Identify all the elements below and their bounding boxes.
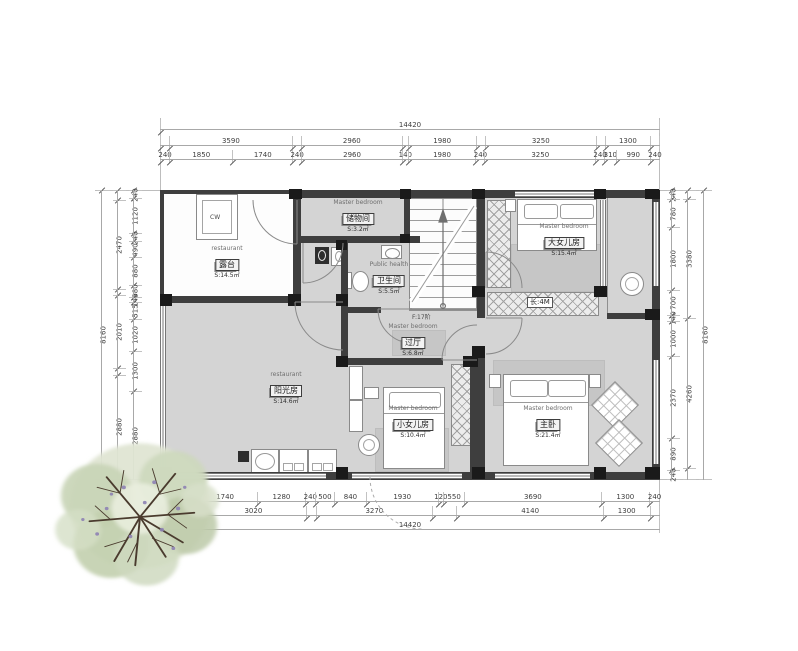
dimension-value: 2010 <box>117 323 124 341</box>
wall-terrace-left <box>160 190 164 302</box>
pillow <box>548 380 586 397</box>
dimension-segment: 240 <box>649 492 660 505</box>
window-elder-daughter-east <box>600 200 606 286</box>
column <box>160 294 172 306</box>
dimension-segment: 4260 <box>683 318 696 468</box>
dimension-segment: 240 <box>650 150 660 163</box>
sink-basin-icon <box>385 248 400 259</box>
staircase <box>409 198 477 310</box>
dimension-row-top-groups: 35902960198032501300 <box>160 136 660 149</box>
dimension-value: 1020 <box>133 326 140 344</box>
room-label-bathroom: Public health卫生间S:5.5㎡ <box>370 261 409 295</box>
dimension-segment: 3590 <box>169 136 292 149</box>
wall-bathroom-south <box>345 307 381 313</box>
room-area: S:14.6㎡ <box>270 398 302 405</box>
dimension-segment: 1300 <box>601 492 650 505</box>
dimension-segment: 8160 <box>699 190 712 480</box>
toilet-icon <box>352 271 369 292</box>
dimension-segment: 3270 <box>316 506 432 519</box>
room-name-zh: 小女儿房 <box>393 419 433 431</box>
wall-terrace-top <box>160 190 295 194</box>
dimension-value: 1280 <box>273 494 291 501</box>
column <box>645 189 660 199</box>
cabinet <box>279 449 308 474</box>
room-name-en: Master bedroom <box>539 223 588 230</box>
dimension-value: 2370 <box>671 389 678 407</box>
column <box>594 467 606 479</box>
wall-stair-east <box>477 198 485 290</box>
room-name-zh: 储物间 <box>342 213 374 225</box>
dimension-segment <box>650 506 660 519</box>
dimension-segment: 500 <box>315 492 334 505</box>
dimension-value: 4140 <box>521 508 539 515</box>
dimension-segment: 780 <box>667 199 680 227</box>
dimension-value: 550 <box>447 494 460 501</box>
wall-stair-west <box>404 198 410 238</box>
drawer-icon <box>323 463 333 471</box>
dimension-value: 1740 <box>254 152 272 159</box>
dimension-segment: 1120 <box>129 198 142 233</box>
dimension-segment <box>160 136 169 149</box>
column <box>472 189 485 199</box>
dimension-segment: 2960 <box>301 136 402 149</box>
cabinet-tall <box>349 366 363 400</box>
washer-drum-icon <box>255 453 275 470</box>
dimension-segment: 3250 <box>484 150 595 163</box>
room-label-storage: Master bedroom储物间S:3.2㎡ <box>333 199 382 233</box>
dimension-segment: 1800 <box>667 227 680 290</box>
dimension-value: 240 <box>671 468 678 481</box>
dimension-segment: 550 <box>443 492 464 505</box>
dimension-segment: 240 <box>292 150 301 163</box>
room-name-en: Master bedroom <box>388 405 437 412</box>
dimension-segment: 310 <box>604 150 615 163</box>
room-label-elder-daughter: Master bedroom大女儿房S:15.4㎡ <box>539 223 588 257</box>
column <box>400 189 411 199</box>
room-name-zh: 过厅 <box>401 337 425 349</box>
room-area: S:5.5㎡ <box>370 288 409 295</box>
room-name-zh: 露台 <box>215 259 239 271</box>
dimension-segment: 1980 <box>408 136 476 149</box>
dimension-segment: 14420 <box>160 120 660 133</box>
washer-drum-icon <box>318 250 326 261</box>
room-name-en: Master bedroom <box>333 199 382 206</box>
room-label-hallway: Master bedroom过厅S:6.8㎡ <box>388 323 437 357</box>
room-name-zh: 大女儿房 <box>544 237 584 249</box>
room-name-zh: 卫生间 <box>373 275 405 287</box>
dimension-row-top-details: 2401850174024029601401980240325024031099… <box>160 150 660 163</box>
dimension-value: 2960 <box>343 152 361 159</box>
wall-sunroom-north <box>160 296 295 303</box>
bay-divider-line <box>607 198 608 313</box>
room-name-en: Master bedroom <box>523 405 572 412</box>
dimension-segment: 880 <box>129 257 142 285</box>
dimension-segment <box>432 506 457 519</box>
drawer-icon <box>294 463 304 471</box>
dimension-value: 780 <box>671 207 678 220</box>
room-label-terrace: restaurant露台S:14.5㎡ <box>211 245 242 279</box>
stair-bottom-line <box>409 310 477 311</box>
column <box>336 240 347 250</box>
pillow <box>524 204 558 219</box>
dimension-value: 1300 <box>618 508 636 515</box>
nightstand <box>505 199 516 212</box>
dimension-value: 1120 <box>133 207 140 225</box>
washer-cabinet-icon <box>251 449 279 474</box>
cabinet-tall <box>349 400 363 432</box>
dimension-value: 1300 <box>616 494 634 501</box>
column <box>472 286 485 297</box>
column <box>472 346 485 358</box>
stair-note: F:17阶 <box>412 312 431 321</box>
dimension-value: 3590 <box>222 138 240 145</box>
room-name-en: Master bedroom <box>388 323 437 330</box>
column <box>594 189 606 199</box>
chair-elder-daughter <box>620 272 644 296</box>
dimension-segment: 1300 <box>603 506 650 519</box>
room-area: S:3.2㎡ <box>333 226 382 233</box>
chair-seat <box>363 439 375 451</box>
dimension-value: 8160 <box>101 326 108 344</box>
dimension-value: 700 <box>671 296 678 309</box>
dimension-segment: 2960 <box>301 150 402 163</box>
dimension-value: 3250 <box>531 152 549 159</box>
column <box>400 234 410 243</box>
chair-little-daughter <box>358 434 380 456</box>
window-bottom-right <box>495 473 590 479</box>
drawer-icon <box>283 463 293 471</box>
dimension-value: 3690 <box>524 494 542 501</box>
wall-master-west-lower <box>477 352 485 472</box>
column <box>336 467 348 479</box>
dimension-segment: 2370 <box>667 356 680 438</box>
dimension-value: 1300 <box>133 362 140 380</box>
dimension-segment: 1980 <box>408 150 476 163</box>
drawer-icon <box>312 463 322 471</box>
dimension-value: 14420 <box>399 122 421 129</box>
room-area: S:21.4㎡ <box>523 432 572 439</box>
dimension-value: 890 <box>671 448 678 461</box>
dimension-segment: 240 <box>160 150 169 163</box>
dimension-segment: 240 <box>475 150 484 163</box>
window-right-upper <box>653 202 659 286</box>
dimension-value: 1850 <box>192 152 210 159</box>
dimension-value: 3270 <box>365 508 383 515</box>
dimension-value: 1800 <box>671 250 678 268</box>
dimension-segment <box>292 136 301 149</box>
column <box>288 294 301 306</box>
tree-illustration <box>40 428 240 606</box>
washing-machine-icon <box>315 247 329 264</box>
column <box>645 309 660 320</box>
pillow <box>510 380 548 397</box>
room-area: S:14.5㎡ <box>211 272 242 279</box>
room-label-sunroom: restaurant阳光房S:14.6㎡ <box>270 371 302 405</box>
dimension-value: 3250 <box>532 138 550 145</box>
room-name-en: restaurant <box>270 371 302 378</box>
dimension-segment <box>306 506 315 519</box>
dimension-value: 4260 <box>687 385 694 403</box>
nightstand <box>364 387 379 399</box>
wall-hallway-south <box>345 358 443 365</box>
dimension-value: 1000 <box>671 330 678 348</box>
dimension-segment <box>650 136 660 149</box>
dimension-value: 1980 <box>433 152 451 159</box>
nightstand <box>589 374 601 388</box>
column <box>289 189 302 199</box>
cabinet <box>308 449 337 474</box>
dimension-row-right-total: 8160 <box>699 190 712 480</box>
dimension-segment: 1740 <box>232 150 292 163</box>
dimension-segment: 4140 <box>456 506 603 519</box>
room-area: S:6.8㎡ <box>388 350 437 357</box>
dimension-segment: 890 <box>667 438 680 470</box>
dimension-segment <box>476 136 485 149</box>
dimension-value: 240 <box>648 152 661 159</box>
dimension-value: 240 <box>648 494 661 501</box>
wardrobe-elder-daughter <box>487 200 511 288</box>
room-area: S:15.4㎡ <box>539 250 588 257</box>
dimension-segment: 1000 <box>667 321 680 356</box>
dimension-segment: 1020 <box>129 319 142 351</box>
room-name-zh: 主卧 <box>536 419 560 431</box>
floor-plan-canvas: 14420 35902960198032501300 2401850174024… <box>0 0 798 651</box>
dimension-value: 1930 <box>393 494 411 501</box>
dimension-row-right-details: 240780180070014010002370890240 <box>667 190 680 480</box>
room-area: S:10.4㎡ <box>388 432 437 439</box>
dimension-segment: 240 <box>305 492 315 505</box>
dimension-segment: 1300 <box>605 136 650 149</box>
dimension-value: 8160 <box>703 326 710 344</box>
window-top <box>515 191 599 197</box>
nightstand <box>489 374 501 388</box>
room-label-little-daughter: Master bedroom小女儿房S:10.4㎡ <box>388 405 437 439</box>
dimension-value: 990 <box>627 152 640 159</box>
dimension-segment <box>596 136 605 149</box>
dimension-value: 880 <box>133 265 140 278</box>
wall-little-daughter-east <box>470 362 477 472</box>
dimension-segment: 3250 <box>485 136 596 149</box>
column <box>472 467 485 479</box>
dimension-value: 1300 <box>619 138 637 145</box>
dimension-row-top-total: 14420 <box>160 120 660 133</box>
dimension-segment: 3380 <box>683 199 696 318</box>
blanket-line <box>504 402 588 403</box>
dimension-value: 2960 <box>343 138 361 145</box>
dimension-row-right-groups: 33804260 <box>683 190 696 480</box>
room-name-zh: 阳光房 <box>270 385 302 397</box>
room-name-en: restaurant <box>211 245 242 252</box>
wall-terrace-divider <box>293 198 301 298</box>
window-bottom-left <box>352 473 462 479</box>
pillow <box>560 204 594 219</box>
dimension-value: 840 <box>344 494 357 501</box>
dimension-segment: 1280 <box>257 492 305 505</box>
dimension-segment: 240 <box>667 470 680 480</box>
room-name-en: Public health <box>370 261 409 268</box>
dimension-value: 14420 <box>399 522 421 529</box>
window-right-lower <box>653 360 659 464</box>
column <box>645 467 660 479</box>
chair-seat <box>625 277 639 291</box>
dimension-value: 1980 <box>433 138 451 145</box>
column <box>336 294 348 306</box>
column <box>594 286 607 297</box>
dimension-segment: 3690 <box>464 492 600 505</box>
dimension-segment: 990 <box>616 150 650 163</box>
room-label-master-bedroom: Master bedroom主卧S:21.4㎡ <box>523 405 572 439</box>
dimension-segment: 2470 <box>113 200 126 290</box>
dimension-segment <box>683 468 696 480</box>
dimension-segment: 2010 <box>113 295 126 368</box>
dimension-segment: 1930 <box>366 492 438 505</box>
dimension-segment: 1300 <box>129 351 142 391</box>
terrace-window-label: CW <box>210 214 220 221</box>
closet-length-tag: 长:4M <box>527 297 553 308</box>
column <box>336 356 348 367</box>
dimension-value: 2470 <box>117 236 124 254</box>
dimension-value: 500 <box>318 494 331 501</box>
dimension-segment: 1850 <box>169 150 232 163</box>
dimension-segment: 840 <box>334 492 366 505</box>
dimension-value: 3020 <box>244 508 262 515</box>
dimension-value: 3380 <box>687 250 694 268</box>
